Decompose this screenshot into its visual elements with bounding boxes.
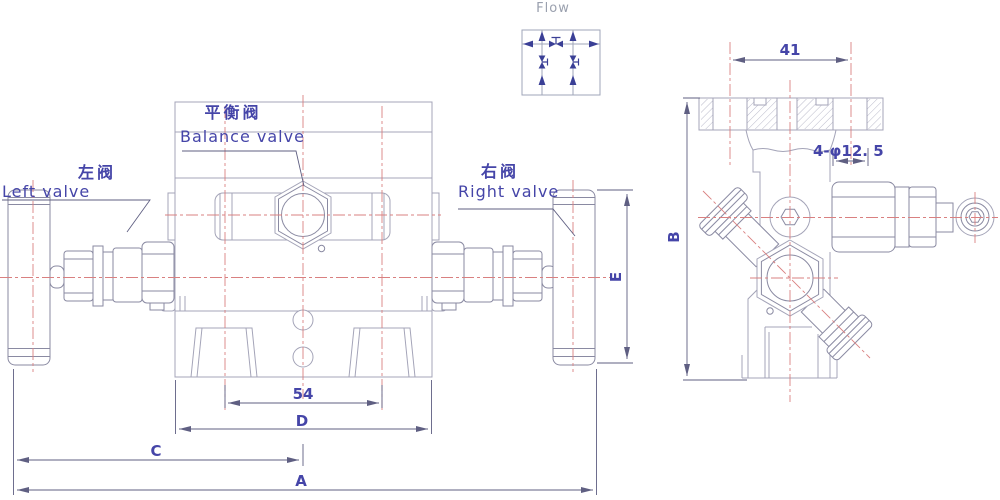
top-flange	[699, 98, 883, 130]
flow-arrow-up-left	[539, 31, 546, 41]
right-bonnet-nut	[432, 242, 464, 303]
flow-schematic: Flow	[522, 1, 600, 95]
right-valve-label-cn: 右阀	[481, 162, 519, 181]
dim-bolt-holes: 4-φ12. 5	[813, 142, 884, 160]
left-valve-label-cn: 左阀	[77, 163, 116, 182]
front-view	[0, 95, 612, 410]
flow-arrow-left	[523, 41, 533, 48]
three-valve-manifold-drawing: Flow 平衡阀 Balance valve 左阀	[0, 0, 1000, 500]
dim-41: 41	[780, 41, 801, 59]
balance-valve-symbol	[549, 38, 563, 48]
right-valve-symbol	[570, 56, 579, 69]
flow-box	[522, 30, 600, 95]
engineering-drawing-canvas: Flow 平衡阀 Balance valve 左阀	[0, 0, 1000, 500]
dim-E: E	[607, 272, 625, 282]
balance-valve-label-cn: 平衡阀	[204, 103, 261, 122]
dim-D: D	[296, 412, 308, 430]
left-bonnet-nut	[142, 242, 174, 303]
side-right-valve	[832, 182, 994, 252]
flow-arrow-bottom-left	[539, 75, 546, 85]
left-valve-label-en: Left valve	[2, 182, 90, 201]
dim-A: A	[295, 472, 307, 490]
dim-54: 54	[293, 385, 314, 403]
balance-valve-label-en: Balance valve	[180, 127, 305, 146]
right-valve-label-en: Right valve	[458, 182, 559, 201]
dim-B: B	[665, 231, 683, 242]
flow-arrow-bottom-right	[570, 75, 577, 85]
flow-label: Flow	[536, 1, 570, 16]
flow-arrow-up-right	[570, 31, 577, 41]
flow-arrow-right	[589, 41, 599, 48]
left-valve-symbol	[539, 56, 548, 69]
dim-C: C	[150, 442, 161, 460]
side-view	[698, 42, 998, 402]
